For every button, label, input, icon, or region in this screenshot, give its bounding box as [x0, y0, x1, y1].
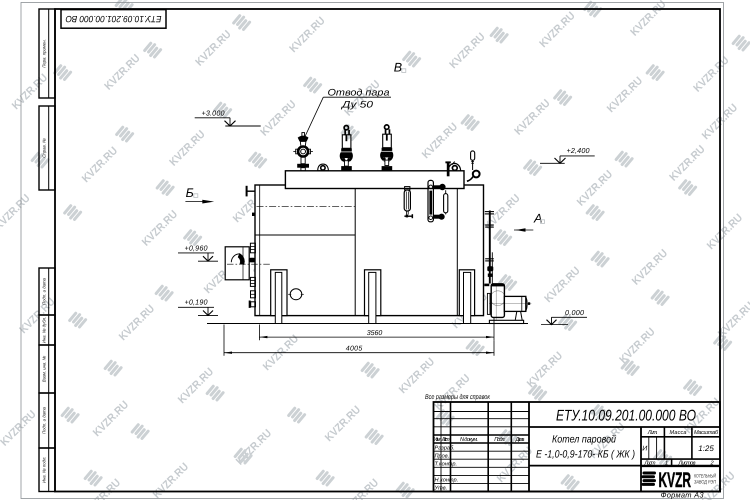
svg-text:Справ. №: Справ. №	[42, 138, 47, 158]
svg-text:ЕТУ.10.09.201.00.000 ВО: ЕТУ.10.09.201.00.000 ВО	[66, 14, 162, 24]
svg-text:В: В	[394, 61, 402, 75]
svg-text:KVZR: KVZR	[659, 469, 692, 492]
svg-text:Изм: Изм	[434, 437, 441, 443]
svg-text:Инв. № дубл.: Инв. № дубл.	[42, 317, 47, 343]
svg-text:Лист: Лист	[644, 461, 656, 467]
svg-text:+0,190: +0,190	[185, 298, 208, 307]
svg-text:КОТЕЛЬНЫЙ: КОТЕЛЬНЫЙ	[694, 473, 716, 480]
svg-text:Подп.: Подп.	[494, 436, 505, 443]
svg-text:Подп. и дата: Подп. и дата	[42, 406, 47, 434]
svg-text:Разраб.: Разраб.	[435, 444, 455, 451]
svg-text:Перв. примен.: Перв. примен.	[42, 39, 47, 68]
svg-text:1: 1	[665, 461, 668, 467]
svg-text:Масштаб: Масштаб	[694, 429, 719, 436]
svg-text:Лит.: Лит.	[647, 430, 658, 436]
svg-text:4005: 4005	[346, 345, 363, 352]
svg-text:Дата: Дата	[515, 437, 525, 443]
svg-text:Масса: Масса	[670, 430, 687, 436]
svg-text:Е -1,0-0,9-170- КБ ( ЖК ): Е -1,0-0,9-170- КБ ( ЖК )	[536, 449, 635, 461]
svg-text:Лист: Лист	[441, 437, 450, 443]
svg-text:+2,400: +2,400	[567, 146, 590, 155]
svg-text:Отвод пара: Отвод пара	[328, 87, 390, 98]
svg-text:+0,960: +0,960	[185, 243, 208, 252]
svg-text:И: И	[642, 446, 648, 453]
svg-text:Т.контр.: Т.контр.	[435, 461, 458, 467]
svg-text:3560: 3560	[367, 330, 383, 337]
svg-text:+3.000: +3.000	[202, 109, 225, 118]
svg-text:Все размеры для справок: Все размеры для справок	[425, 393, 491, 401]
svg-text:Утв.: Утв.	[434, 486, 448, 492]
svg-text:ЗАВОД РЭП: ЗАВОД РЭП	[694, 480, 716, 486]
svg-text:Взам. инв. №: Взам. инв. №	[42, 355, 47, 382]
svg-text:Листов: Листов	[678, 461, 696, 467]
svg-text:Инв. № подл.: Инв. № подл.	[42, 456, 47, 483]
svg-text:1:25: 1:25	[698, 444, 714, 453]
svg-text:ЕТУ.10.09.201.00.000 ВО: ЕТУ.10.09.201.00.000 ВО	[556, 408, 696, 425]
svg-text:Котел паровой: Котел паровой	[552, 434, 616, 446]
svg-text:0,000: 0,000	[565, 308, 584, 317]
svg-text:N докум.: N докум.	[460, 436, 478, 443]
svg-text:Ду 50: Ду 50	[341, 99, 374, 110]
svg-text:Пров.: Пров.	[435, 453, 450, 459]
svg-text:Н.контр.: Н.контр.	[435, 478, 459, 484]
svg-text:Б: Б	[186, 186, 194, 200]
svg-text:Формат А3: Формат А3	[661, 491, 705, 500]
svg-text:Подп. и дата: Подп. и дата	[42, 277, 47, 305]
